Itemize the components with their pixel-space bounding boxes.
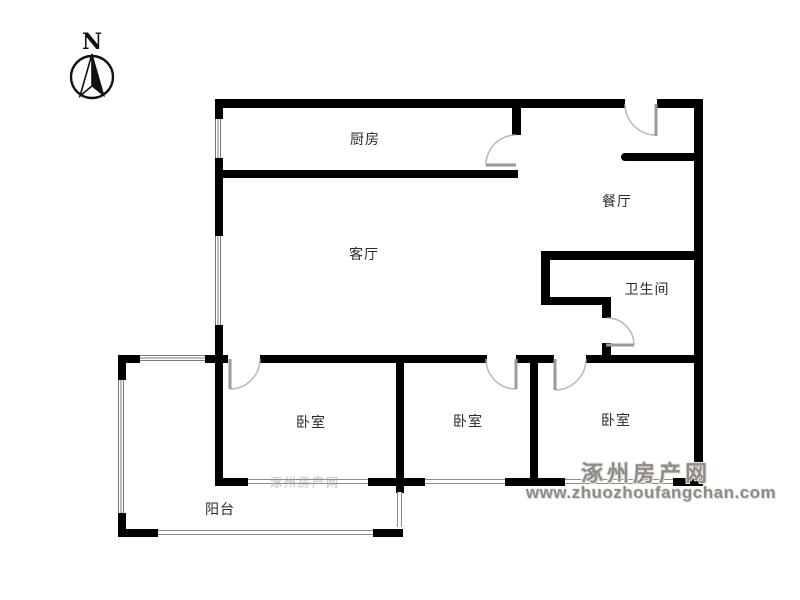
kitchen-door <box>486 135 516 165</box>
watermark-ghost-text: 涿州房产网 <box>270 474 340 491</box>
compass-arrow-left-half <box>80 54 92 96</box>
room-label-bathroom: 卫生间 <box>625 279 670 299</box>
bedroom-right-door-arc <box>555 359 586 390</box>
watermark-site-url: www.zhuozhoufangchan.com <box>526 483 776 503</box>
room-label-balcony: 阳台 <box>205 499 235 519</box>
room-label-bedroom-left: 卧室 <box>296 412 326 432</box>
compass-arrow-right-half <box>92 54 104 96</box>
bedroom-middle-door <box>486 359 516 389</box>
entry-door-arc <box>625 104 656 135</box>
room-label-living: 客厅 <box>349 244 379 264</box>
bedroom-left-door <box>230 359 260 389</box>
bedroom-middle-door-arc <box>486 359 516 389</box>
room-label-bedroom-middle: 卧室 <box>453 411 483 431</box>
bathroom-door <box>606 318 634 345</box>
kitchen-door-arc <box>486 135 516 165</box>
room-label-kitchen: 厨房 <box>350 129 380 149</box>
entry-door <box>625 104 656 136</box>
bedroom-right-door <box>555 359 586 390</box>
floor-plan: N 厨房 餐厅 客厅 卫生间 卧室 卧室 卧室 阳台 涿州房产网 涿州房产网 w… <box>0 0 800 600</box>
compass-north-label: N <box>82 29 102 55</box>
bathroom-door-arc <box>607 318 634 345</box>
room-label-bedroom-right: 卧室 <box>601 410 631 430</box>
room-label-dining: 餐厅 <box>602 191 632 211</box>
bedroom-left-door-arc <box>230 359 260 389</box>
